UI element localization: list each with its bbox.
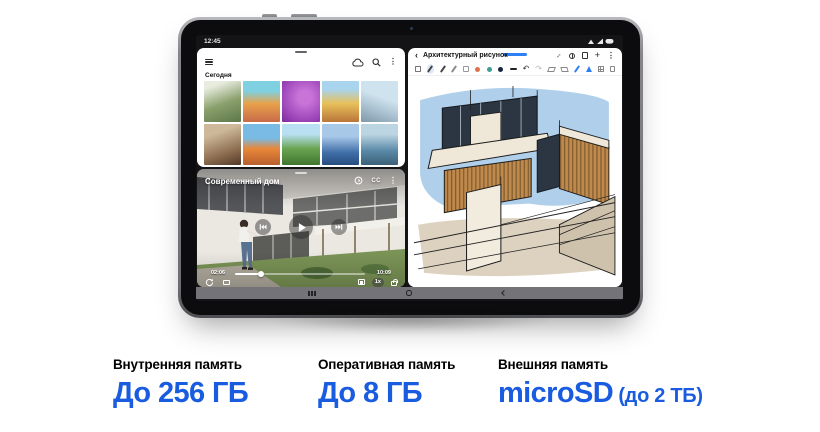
search-icon[interactable] (372, 58, 381, 67)
ruler-tool[interactable] (548, 65, 555, 73)
previous-button[interactable] (255, 219, 271, 235)
architecture-sketch (408, 76, 622, 287)
photo-grid (204, 81, 398, 167)
settings-tool[interactable] (610, 65, 616, 73)
product-card: 12:45 (0, 0, 820, 432)
gallery-thumbnail[interactable] (204, 81, 241, 122)
playback-speed-badge[interactable]: 1x (372, 278, 384, 287)
rotate-screen-icon[interactable] (205, 278, 214, 287)
pen-tool-active[interactable] (427, 64, 434, 74)
total-time: 10:09 (377, 270, 391, 276)
more-icon[interactable]: ⋮ (389, 58, 397, 66)
grid-tool[interactable] (598, 65, 604, 73)
add-page-icon[interactable]: + (595, 51, 600, 60)
status-bar: 12:45 (196, 35, 623, 47)
gallery-thumbnail[interactable] (243, 124, 280, 165)
wifi-icon (588, 40, 594, 44)
redo-icon[interactable]: ↷ (535, 65, 542, 73)
home-button[interactable] (389, 287, 429, 299)
notes-header: ‹ Архитектурный рисунок ↔ + ⋮ (408, 48, 622, 63)
gallery-thumbnail[interactable] (361, 124, 398, 165)
current-time: 02:06 (211, 270, 225, 276)
screen-mode-icon[interactable] (223, 280, 230, 285)
favorite-pen-tool[interactable] (586, 65, 592, 73)
play-button[interactable] (289, 215, 313, 239)
lock-icon[interactable] (391, 281, 397, 286)
rotate-icon[interactable] (354, 176, 363, 185)
gallery-thumbnail[interactable] (322, 124, 359, 165)
menu-icon[interactable] (205, 57, 213, 67)
expand-icon[interactable]: ↔ (554, 51, 564, 61)
drawing-app-window: ‹ Архитектурный рисунок ↔ + ⋮ (408, 48, 622, 287)
gallery-thumbnail[interactable] (282, 81, 319, 122)
drawing-toolbar: ↶ ↷ (408, 63, 622, 76)
spec-label: Внутренняя память (113, 357, 248, 372)
color-swatch-teal[interactable] (487, 65, 493, 73)
select-tool[interactable] (415, 65, 421, 73)
status-time: 12:45 (204, 38, 221, 45)
recents-button[interactable] (292, 287, 332, 299)
tablet-bezel: 12:45 (181, 20, 640, 315)
spec-label: Внешняя память (498, 357, 703, 372)
gallery-thumbnail[interactable] (243, 81, 280, 122)
gallery-thumbnail[interactable] (322, 81, 359, 122)
spec-value: microSD (498, 377, 613, 409)
spec-value-suffix: (до 2 ТБ) (613, 385, 703, 407)
navigation-bar (196, 287, 623, 299)
spec-external-memory: Внешняя память microSD (до 2 ТБ) (498, 357, 703, 410)
gallery-thumbnail[interactable] (204, 124, 241, 165)
tablet-shadow (208, 316, 613, 340)
gallery-thumbnail[interactable] (361, 81, 398, 122)
next-button[interactable] (331, 219, 347, 235)
seek-bar[interactable] (235, 273, 365, 275)
cloud-icon[interactable] (352, 58, 364, 67)
subtitles-icon[interactable]: CC (371, 178, 381, 184)
more-icon[interactable]: ⋮ (389, 177, 397, 185)
spec-value: До 256 ГБ (113, 377, 248, 409)
drawing-canvas[interactable] (408, 76, 622, 287)
stroke-width-tool[interactable] (510, 65, 517, 73)
color-swatch-orange[interactable] (475, 65, 481, 73)
status-icons (587, 37, 615, 45)
spec-ram: Оперативная память До 8 ГБ (318, 357, 455, 410)
pencil-tool[interactable] (440, 65, 446, 73)
more-icon[interactable]: ⋮ (607, 52, 615, 60)
gallery-window: ⋮ Сегодня (197, 48, 405, 167)
pip-icon[interactable] (358, 279, 365, 285)
color-swatch-navy[interactable] (498, 65, 504, 73)
spec-value: До 8 ГБ (318, 377, 422, 409)
window-drag-handle[interactable] (295, 172, 307, 174)
note-title: Архитектурный рисунок (423, 52, 508, 59)
back-button[interactable] (484, 287, 524, 299)
video-title: Современный дом (205, 177, 280, 186)
signal-icon (597, 39, 603, 45)
tablet-screen: 12:45 (196, 35, 623, 301)
front-camera (410, 27, 413, 30)
brush-tool[interactable] (451, 65, 457, 73)
popup-view-icon[interactable] (569, 53, 575, 59)
tablet-device: 12:45 (178, 17, 643, 318)
gallery-section-label: Сегодня (205, 72, 232, 79)
spec-internal-memory: Внутренняя память До 256 ГБ (113, 357, 248, 410)
undo-icon[interactable]: ↶ (523, 65, 530, 73)
eraser-tool[interactable] (463, 65, 469, 73)
gallery-header: ⋮ (197, 54, 405, 70)
window-drag-handle[interactable] (295, 51, 307, 53)
highlighter-tool[interactable] (574, 65, 580, 73)
seek-thumb[interactable] (258, 271, 264, 277)
shape-tool[interactable] (561, 65, 568, 73)
gallery-thumbnail[interactable] (282, 124, 319, 165)
back-icon[interactable]: ‹ (415, 51, 418, 60)
page-icon[interactable] (582, 52, 588, 59)
video-player-window: Современный дом CC ⋮ (197, 169, 405, 287)
spec-label: Оперативная память (318, 357, 455, 372)
battery-icon (606, 39, 614, 44)
multi-window-area: ⋮ Сегодня (196, 47, 623, 301)
